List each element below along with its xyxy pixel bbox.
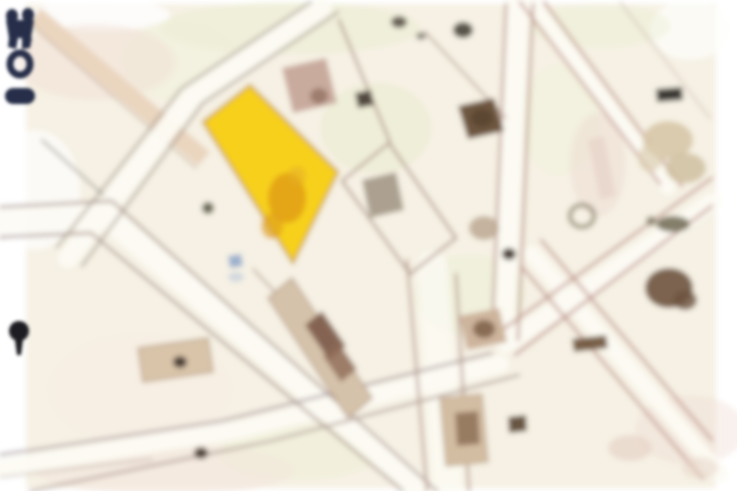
dark-dash — [656, 87, 683, 102]
bar-icon[interactable] — [5, 88, 35, 104]
map-content — [0, 0, 737, 491]
map-viewport[interactable] — [0, 0, 737, 491]
blue-mark — [228, 254, 243, 268]
small-dark-building — [355, 90, 374, 108]
map-image — [0, 0, 737, 491]
